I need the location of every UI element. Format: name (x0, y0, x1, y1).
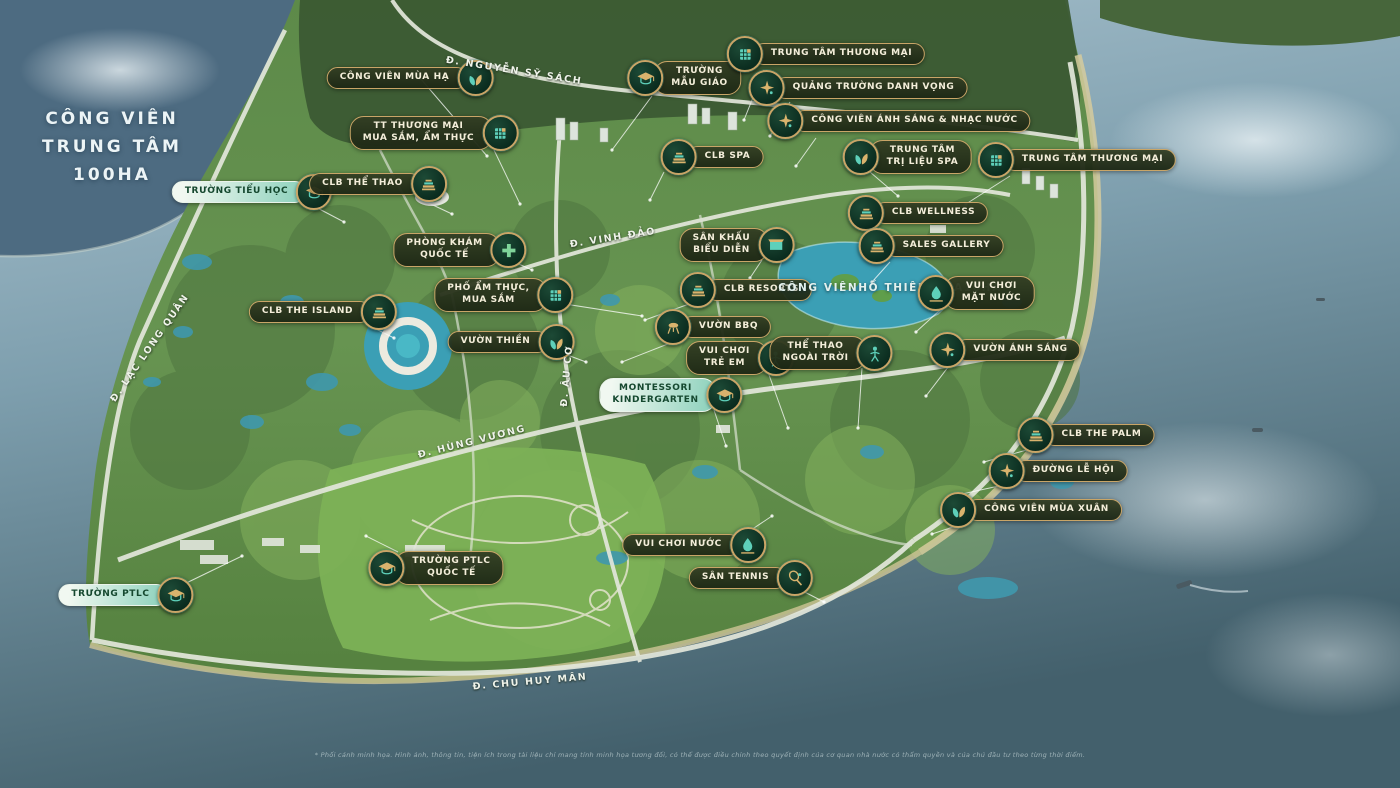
leaf-icon (843, 139, 879, 175)
label-line: TT THƯƠNG MẠI (363, 121, 475, 133)
label-line: CLB WELLNESS (892, 207, 975, 219)
label-text: PHÒNG KHÁMQUỐC TẾ (393, 233, 500, 266)
label-line: TRƯỜNG PTLC (71, 589, 149, 601)
label-text: SÂN KHẤUBIỂU DIỄN (680, 228, 769, 261)
label-line: VƯỜN ÁNH SÁNG (973, 344, 1067, 356)
building-icon (859, 228, 895, 264)
label-clb-spa[interactable]: CLB SPA (661, 139, 764, 175)
label-line: TRUNG TÂM THƯƠNG MẠI (1022, 154, 1163, 166)
cap-icon (158, 577, 194, 613)
label-line: ĐƯỜNG LỄ HỘI (1033, 465, 1115, 477)
label-line: BIỂU DIỄN (693, 245, 751, 257)
label-text: VUI CHƠI NƯỚC (622, 534, 740, 556)
label-line: TRUNG TÂM (887, 145, 959, 157)
label-tennis-court[interactable]: SÂN TENNIS (689, 560, 813, 596)
label-line: MUA SẮM, ẨM THỰC (363, 133, 475, 145)
label-light-garden[interactable]: VƯỜN ÁNH SÁNG (929, 332, 1080, 368)
label-spring-park[interactable]: CÔNG VIÊN MÙA XUÂN (940, 492, 1122, 528)
label-line: PHỐ ẨM THỰC, (447, 283, 529, 295)
spark-icon (929, 332, 965, 368)
label-line: MONTESSORI (612, 383, 698, 395)
grid-icon (978, 142, 1014, 178)
cap-icon (627, 60, 663, 96)
label-clb-the-thao[interactable]: CLB THỂ THAO (309, 166, 447, 202)
road-label-vinh-dao: Đ. VINH ĐẢO (569, 226, 657, 250)
label-text: VƯỜN ÁNH SÁNG (955, 339, 1080, 361)
label-text: PHỐ ẨM THỰC,MUA SẮM (434, 278, 547, 311)
person-icon (857, 335, 893, 371)
label-performance-stage[interactable]: SÂN KHẤUBIỂU DIỄN (680, 227, 795, 263)
label-shopping-food-center[interactable]: TT THƯƠNG MẠIMUA SẮM, ẨM THỰC (350, 115, 519, 151)
label-line: TRUNG TÂM THƯƠNG MẠI (771, 48, 912, 60)
label-line: SÂN KHẤU (693, 233, 751, 245)
grid-icon (538, 277, 574, 313)
label-water-fun-park[interactable]: VUI CHƠI NƯỚC (622, 527, 766, 563)
label-text: VƯỜN BBQ (681, 316, 771, 338)
label-mall-north[interactable]: TRUNG TÂM THƯƠNG MẠI (727, 36, 925, 72)
label-food-street[interactable]: PHỐ ẨM THỰC,MUA SẮM (434, 277, 573, 313)
label-line: CÔNG VIÊN MÙA XUÂN (984, 504, 1109, 516)
label-text: CÔNG VIÊN ÁNH SÁNG & NHẠC NƯỚC (793, 110, 1030, 132)
label-clb-the-island[interactable]: CLB THE ISLAND (249, 294, 397, 330)
label-line: VƯỜN BBQ (699, 321, 758, 333)
label-festival-street[interactable]: ĐƯỜNG LỄ HỘI (989, 453, 1128, 489)
label-ptlc-intl-school[interactable]: TRƯỜNG PTLCQUỐC TẾ (368, 550, 503, 586)
label-text: TRUNG TÂM THƯƠNG MẠI (753, 43, 925, 65)
cap-icon (707, 377, 743, 413)
label-line: TRƯỜNG (671, 66, 728, 78)
droplet-icon (918, 275, 954, 311)
label-text: VUI CHƠIMẶT NƯỚC (944, 276, 1035, 309)
cross-icon (491, 232, 527, 268)
building-icon (661, 139, 697, 175)
label-text: QUẢNG TRƯỜNG DANH VỌNG (775, 77, 968, 99)
label-text: CLB SPA (687, 146, 764, 168)
building-icon (1018, 417, 1054, 453)
label-intl-clinic[interactable]: PHÒNG KHÁMQUỐC TẾ (393, 232, 526, 268)
label-line: TRỊ LIỆU SPA (887, 157, 959, 169)
tennis-icon (777, 560, 813, 596)
label-line: MUA SẮM (447, 295, 529, 307)
road-label-lac-long-quan: Đ. LẠC LONG QUÂN (108, 292, 191, 404)
label-text: TRƯỜNG PTLCQUỐC TẾ (394, 551, 503, 584)
label-line: MẶT NƯỚC (962, 293, 1022, 305)
label-spa-therapy-center[interactable]: TRUNG TÂMTRỊ LIỆU SPA (843, 139, 972, 175)
spark-icon (767, 103, 803, 139)
label-line: NGOÀI TRỜI (782, 353, 848, 365)
label-line: TRƯỜNG TIỂU HỌC (185, 186, 288, 198)
label-line: QUẢNG TRƯỜNG DANH VỌNG (793, 82, 955, 94)
label-line: SÂN TENNIS (702, 572, 769, 584)
label-text: VUI CHƠITRẺ EM (686, 341, 768, 374)
label-zen-garden[interactable]: VƯỜN THIỀN (448, 324, 575, 360)
droplet-icon (730, 527, 766, 563)
label-text: TRUNG TÂM THƯƠNG MẠI (1004, 149, 1176, 171)
labels-layer: CÔNG VIÊN MÙA HẠTRƯỜNGMẪU GIÁOTRUNG TÂM … (0, 0, 1400, 788)
label-line: CÔNG VIÊN (778, 282, 858, 294)
label-line: CLB THE ISLAND (262, 306, 353, 318)
label-text: SÂN TENNIS (689, 567, 787, 589)
label-line: SALES GALLERY (903, 240, 991, 252)
label-clb-wellness[interactable]: CLB WELLNESS (848, 195, 988, 231)
label-text: SALES GALLERY (885, 235, 1004, 257)
label-line: KINDERGARTEN (612, 395, 698, 407)
label-fame-square[interactable]: QUẢNG TRƯỜNG DANH VỌNG (749, 70, 968, 106)
label-montessori-kindergarten[interactable]: MONTESSORIKINDERGARTEN (599, 377, 742, 413)
label-text: TRƯỜNG PTLC (58, 584, 167, 606)
label-line: VƯỜN THIỀN (461, 336, 531, 348)
label-line: CLB THE PALM (1062, 429, 1142, 441)
label-line: CLB SPA (705, 151, 751, 163)
road-label-chu-huy-man: Đ. CHU HUY MÂN (472, 671, 588, 692)
spark-icon (989, 453, 1025, 489)
label-line: CÔNG VIÊN MÙA HẠ (340, 72, 450, 84)
label-text: CLB WELLNESS (874, 202, 988, 224)
building-icon (848, 195, 884, 231)
masterplan-map: CÔNG VIÊNTRUNG TÂM100HA CÔNG VIÊN MÙA HẠ… (0, 0, 1400, 788)
label-line: PHÒNG KHÁM (406, 238, 482, 250)
grid-icon (727, 36, 763, 72)
label-line: CLB THỂ THAO (322, 178, 403, 190)
label-text: CÔNG VIÊN MÙA XUÂN (966, 499, 1122, 521)
label-line: QUỐC TẾ (406, 250, 482, 262)
road-label-hung-vuong: Đ. HÙNG VƯƠNG (417, 423, 527, 461)
label-line: TRƯỜNG PTLC (412, 556, 490, 568)
label-sales-gallery[interactable]: SALES GALLERY (859, 228, 1004, 264)
label-text: THỂ THAONGOÀI TRỜI (769, 336, 866, 369)
label-line: TRẺ EM (699, 358, 750, 370)
label-line: THỂ THAO (782, 341, 848, 353)
label-text: MONTESSORIKINDERGARTEN (599, 378, 716, 411)
label-ptlc-school[interactable]: TRƯỜNG PTLC (58, 577, 193, 613)
label-text: TT THƯƠNG MẠIMUA SẮM, ẨM THỰC (350, 116, 493, 149)
leaf-icon (940, 492, 976, 528)
building-icon (680, 272, 716, 308)
label-line: VUI CHƠI (699, 346, 750, 358)
label-mall-east[interactable]: TRUNG TÂM THƯƠNG MẠI (978, 142, 1176, 178)
label-outdoor-sports[interactable]: THỂ THAONGOÀI TRỜI (769, 335, 892, 371)
label-line: VUI CHƠI NƯỚC (635, 539, 722, 551)
label-line: MẪU GIÁO (671, 78, 728, 90)
label-kindergarten[interactable]: TRƯỜNGMẪU GIÁO (627, 60, 741, 96)
label-light-music-park[interactable]: CÔNG VIÊN ÁNH SÁNG & NHẠC NƯỚC (767, 103, 1030, 139)
label-text: CÔNG VIÊN MÙA HẠ (327, 67, 468, 89)
spark-icon (749, 70, 785, 106)
label-line: CÔNG VIÊN ÁNH SÁNG & NHẠC NƯỚC (811, 115, 1017, 127)
label-text: CLB THỂ THAO (309, 173, 421, 195)
label-text: CLB THE ISLAND (249, 301, 371, 323)
label-clb-the-palm[interactable]: CLB THE PALM (1018, 417, 1155, 453)
label-text: TRƯỜNG TIỂU HỌC (172, 181, 306, 203)
label-text: CLB THE PALM (1044, 424, 1155, 446)
building-icon (361, 294, 397, 330)
label-text: TRUNG TÂMTRỊ LIỆU SPA (869, 140, 972, 173)
grid-icon (482, 115, 518, 151)
label-line: QUỐC TẾ (412, 568, 490, 580)
label-text: ĐƯỜNG LỄ HỘI (1015, 460, 1128, 482)
label-text: VƯỜN THIỀN (448, 331, 549, 353)
stage-icon (758, 227, 794, 263)
label-water-play[interactable]: VUI CHƠIMẶT NƯỚC (918, 275, 1035, 311)
building-icon (411, 166, 447, 202)
cap-icon (368, 550, 404, 586)
label-line: VUI CHƠI (962, 281, 1022, 293)
